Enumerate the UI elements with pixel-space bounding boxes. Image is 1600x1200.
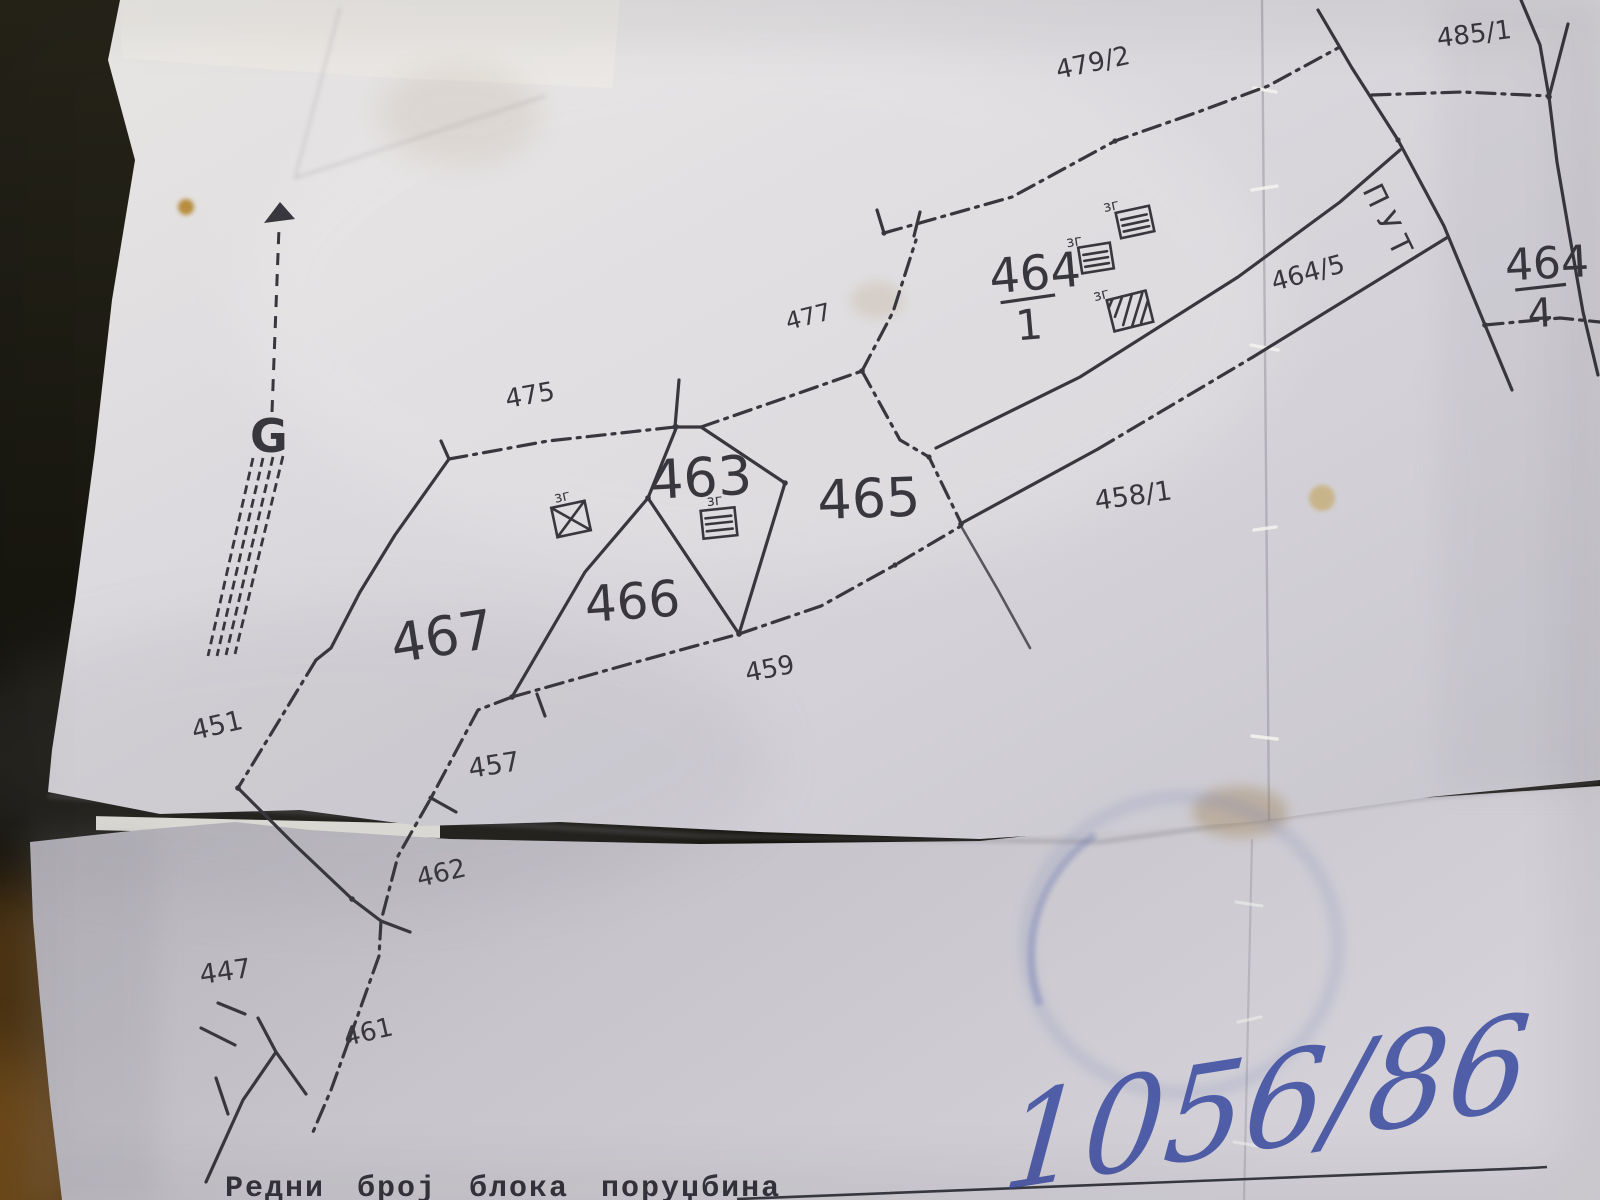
parcel-label-463: 463 xyxy=(647,444,753,512)
north-letter: G xyxy=(250,409,288,463)
parcel-label-465: 465 xyxy=(816,465,921,532)
parcel-label-466: 466 xyxy=(583,569,682,634)
fraction-numerator: 464 xyxy=(987,242,1083,306)
fraction-denominator: 1 xyxy=(1014,299,1045,350)
photo-of-cadastral-sketch: зг зг зг зг зг G xyxy=(0,0,1600,1200)
cadastral-map-canvas: зг зг зг зг зг G xyxy=(0,0,1600,1200)
fraction-denominator: 4 xyxy=(1526,290,1554,337)
